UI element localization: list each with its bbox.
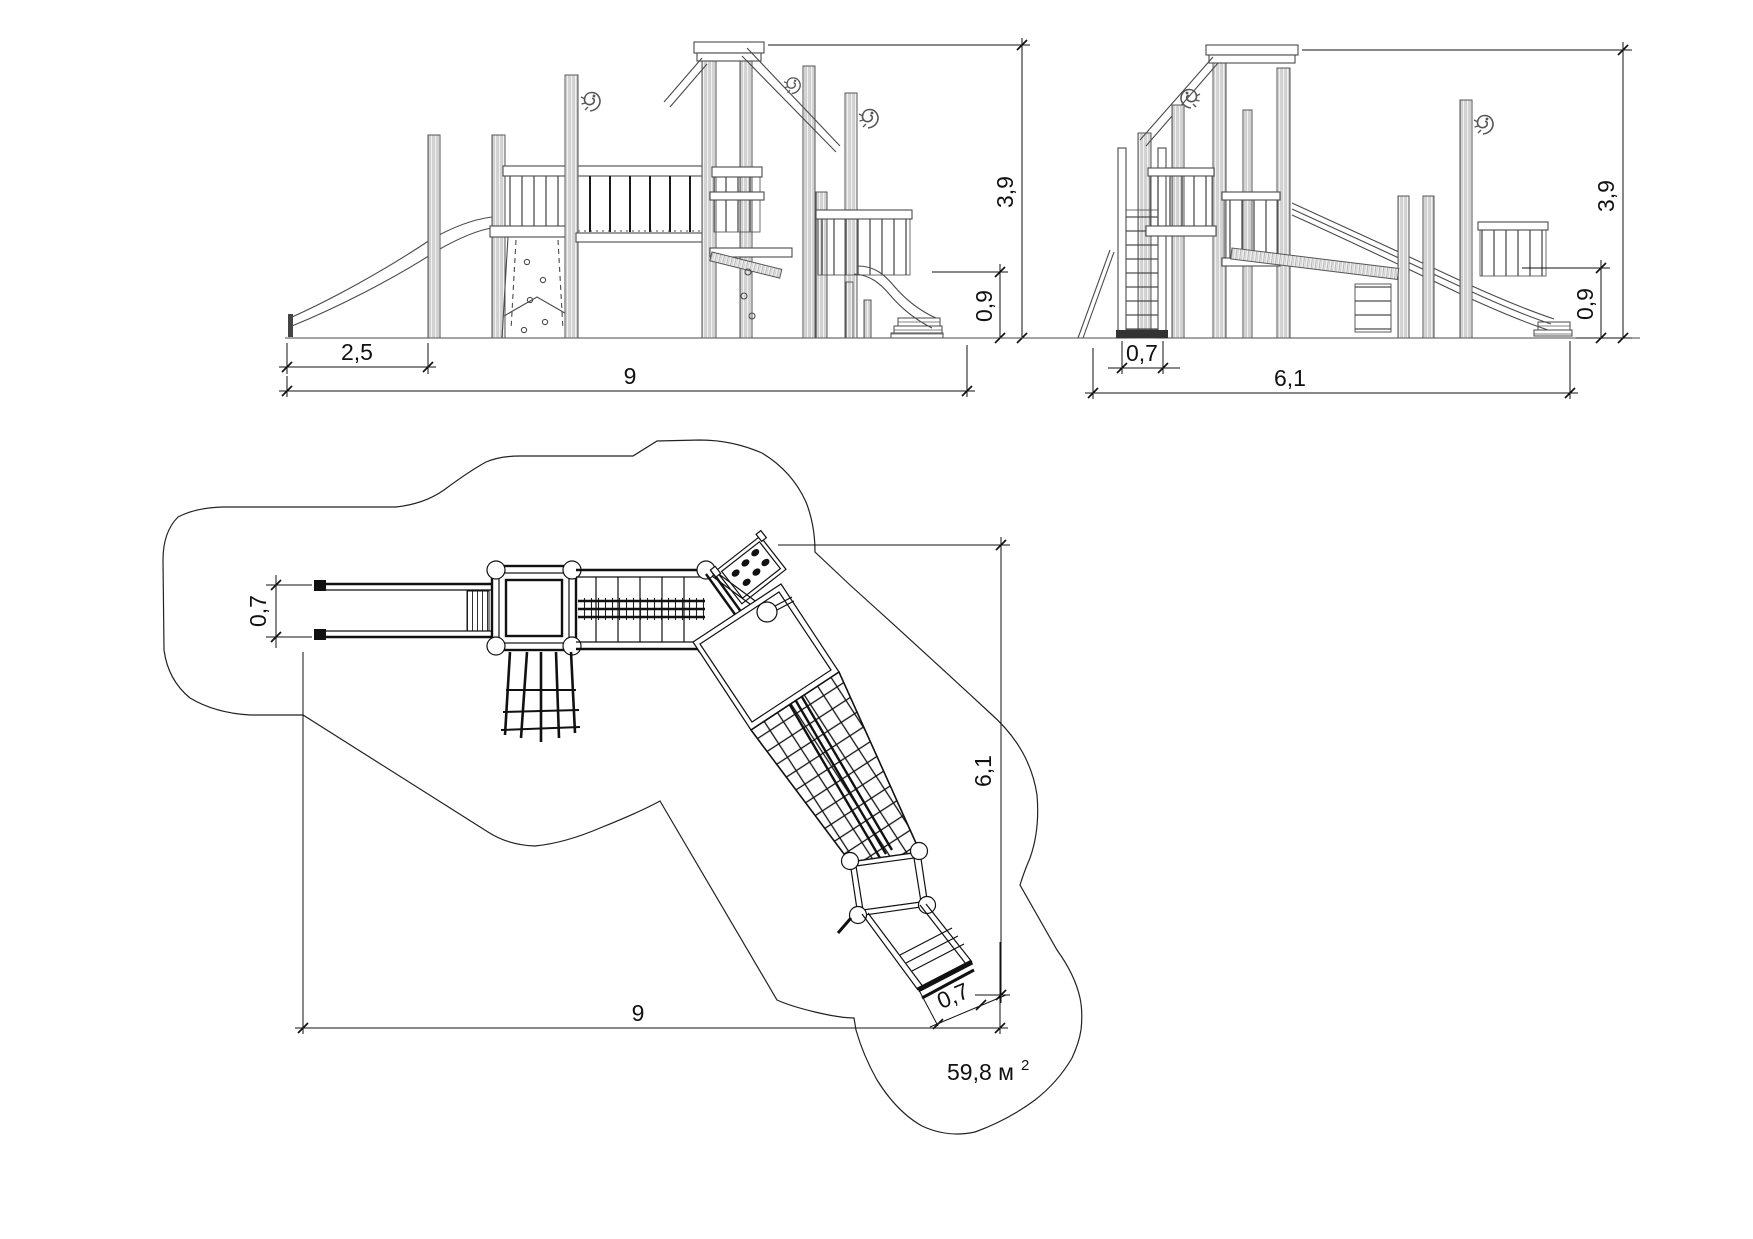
railing-balusters <box>505 176 565 232</box>
roof-beam-left <box>664 58 707 107</box>
support-post <box>1423 196 1434 338</box>
post <box>1277 68 1290 338</box>
dim-label-side-slide-height: 0,9 <box>1572 288 1598 320</box>
climbing-ramp <box>502 237 572 338</box>
handrail <box>816 210 912 219</box>
corner-post <box>487 561 505 579</box>
carved-pole <box>565 75 578 338</box>
seahorse-icon <box>859 110 878 129</box>
small-ladder <box>1355 284 1391 332</box>
dim-side-total-depth: 6,1 <box>1085 341 1578 399</box>
seahorse-icon <box>581 93 600 112</box>
dim-label-front-total-width: 9 <box>624 363 637 389</box>
carved-pole <box>1460 100 1472 338</box>
upper-deck <box>710 192 764 200</box>
dim-label-plan-lower-slide-width: 0,7 <box>933 977 973 1013</box>
dim-side-ladder-width: 0,7 <box>1108 340 1180 374</box>
playground-technical-drawing: { "page": { "background_color": "#ffffff… <box>0 0 1753 1239</box>
dim-plan-slide-width: 0,7 <box>245 575 312 648</box>
seahorse-icon <box>1181 90 1200 109</box>
railing-balusters <box>1480 230 1546 276</box>
tower-cap <box>1206 45 1298 55</box>
bridge-walkway <box>576 233 704 242</box>
dim-front-slide-height: 0,9 <box>932 264 1008 343</box>
railing-balusters <box>714 177 760 232</box>
cad-drawing-canvas: 2,5 9 0,9 <box>0 0 1753 1239</box>
roof-beam <box>742 48 840 152</box>
plan-view: 0,7 9 6,1 <box>163 440 1082 1134</box>
corner-post <box>487 637 505 655</box>
dim-label-front-slide-run: 2,5 <box>341 339 373 365</box>
dim-label-plan-total-depth: 6,1 <box>970 755 996 787</box>
dim-label-plan-total-width: 9 <box>632 1000 645 1026</box>
safety-zone-area-label: 59,8 м 2 <box>947 1057 1029 1085</box>
area-superscript: 2 <box>1021 1057 1029 1074</box>
area-value: 59,8 м <box>947 1059 1014 1085</box>
climbing-holds <box>728 546 774 589</box>
railing-balusters <box>1150 176 1212 226</box>
seahorse-icon <box>1474 116 1493 135</box>
dim-label-front-slide-height: 0,9 <box>971 290 997 322</box>
dim-label-side-total-depth: 6,1 <box>1274 365 1306 391</box>
dim-label-side-total-height: 3,9 <box>1593 180 1619 212</box>
front-elevation-view: 2,5 9 0,9 <box>279 38 1030 397</box>
front-small-slide-section <box>816 192 943 338</box>
tower-cap <box>694 42 764 53</box>
platform-deck <box>490 226 570 237</box>
slide-start-steps <box>467 591 489 631</box>
dim-label-front-total-height: 3,9 <box>992 176 1018 208</box>
dim-front-total-width: 9 <box>279 345 975 397</box>
post <box>428 135 440 338</box>
handrail <box>503 166 703 176</box>
side-elevation-view: 0,7 6,1 0,9 <box>1000 42 1640 399</box>
corner-post <box>757 602 777 622</box>
support-post <box>1398 196 1409 338</box>
front-rope-bridge <box>576 176 704 242</box>
flag-post <box>838 918 851 933</box>
plan-net-climber <box>501 652 580 742</box>
front-left-slide <box>288 217 492 337</box>
dim-plan-lower-slide-width: 0,7 <box>920 977 1006 1029</box>
bridge-hangers <box>580 176 702 232</box>
dim-front-slide-run: 2,5 <box>279 339 436 374</box>
deck <box>1146 226 1216 236</box>
dim-label-plan-slide-width: 0,7 <box>245 595 271 627</box>
dim-label-side-ladder-width: 0,7 <box>1126 340 1158 366</box>
plan-main-tower <box>487 561 581 655</box>
slide-end <box>1538 322 1570 330</box>
seahorse-icon <box>784 78 800 94</box>
post <box>803 66 815 338</box>
ladder-foot <box>1116 330 1168 338</box>
plan-left-slide <box>314 580 497 640</box>
